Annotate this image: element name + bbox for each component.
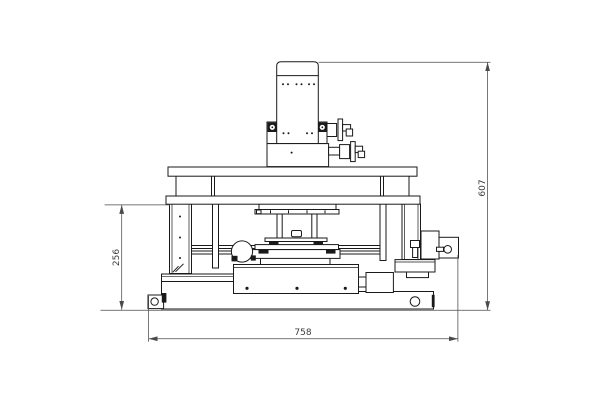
- drawing-line: [346, 129, 352, 136]
- drawing-line: [259, 204, 336, 210]
- bridge: [166, 167, 420, 204]
- drawing-line: [283, 132, 285, 134]
- drawing-line: [306, 132, 308, 134]
- actuator-plate: [395, 260, 435, 272]
- dimension-stage-height: 256: [105, 205, 170, 310]
- drawing-line: [321, 126, 323, 128]
- stage-screw-dot: [344, 287, 347, 290]
- drawing-line: [358, 151, 364, 157]
- overall-width-label: 758: [294, 328, 311, 338]
- drawing-line: [255, 210, 339, 215]
- knob-shaft: [437, 247, 444, 251]
- drawing-line: [265, 238, 327, 242]
- side-knob-circle: [444, 246, 452, 254]
- optics-column: [277, 62, 319, 144]
- machine-front-view-technical-drawing: 607 256 758: [0, 0, 600, 400]
- base-left-top-plate: [162, 274, 234, 282]
- drawing-line: [313, 83, 315, 85]
- drawing-line: [296, 83, 298, 85]
- actuator-tab: [407, 272, 429, 278]
- clamp-bolt-head: [411, 241, 420, 248]
- center-stage-stack: [231, 204, 340, 265]
- stage-screw-dot: [295, 287, 298, 290]
- drawing-line: [329, 147, 340, 155]
- drawing-line: [287, 83, 289, 85]
- drawing-canvas: 607 256 758: [0, 0, 600, 400]
- upper-focus-knob: [327, 119, 353, 141]
- center-knob: [292, 231, 302, 237]
- drawing-line: [308, 83, 310, 85]
- stage-end-pad: [259, 250, 269, 254]
- drawing-line: [257, 210, 262, 214]
- drawing-line: [255, 245, 339, 250]
- column-hole-dot: [179, 237, 181, 239]
- stage-motor: [359, 273, 394, 293]
- drawing-line: [271, 126, 273, 128]
- stage-side-pad: [232, 256, 238, 262]
- stage-screw-dot: [245, 287, 248, 290]
- base-right-pad: [432, 295, 435, 307]
- head-assembly: [267, 62, 365, 167]
- foot-clamp-pad: [162, 293, 167, 303]
- stage-height-label: 256: [112, 249, 122, 266]
- bridge-beam: [176, 176, 409, 196]
- stage-post-left: [277, 214, 282, 238]
- stage-end-pad: [326, 250, 336, 254]
- clamp-bolt-shank: [413, 248, 418, 258]
- actuator-bracket: [421, 231, 439, 259]
- motor-coupling: [359, 277, 367, 287]
- lower-focus-knob: [340, 142, 365, 162]
- foot-bolt-circle: [151, 298, 158, 305]
- left-outer-column: [170, 204, 192, 274]
- right-inner-post: [380, 204, 386, 261]
- bridge-lower-flange: [166, 196, 420, 204]
- drawing-line: [327, 124, 337, 137]
- drawing-line: [340, 145, 350, 159]
- drawing-line: [282, 83, 284, 85]
- drawing-line: [288, 132, 290, 134]
- motor-body: [366, 273, 393, 293]
- column-hole-dot: [179, 216, 181, 218]
- stage-post-right: [312, 214, 317, 238]
- left-inner-post: [213, 204, 219, 268]
- drawing-line: [351, 142, 356, 162]
- overall-height-label: 607: [478, 179, 488, 196]
- drawing-line: [311, 132, 313, 134]
- focus-block: [267, 144, 329, 167]
- column-hole-dot: [179, 257, 181, 259]
- drawing-line: [338, 119, 343, 141]
- bridge-top-plate: [168, 167, 417, 176]
- base-bolt-circle: [410, 297, 420, 307]
- stage-side-pad: [251, 255, 256, 260]
- drawing-line: [291, 152, 293, 154]
- lower-stage-block: [234, 265, 359, 294]
- drawing-line: [301, 83, 303, 85]
